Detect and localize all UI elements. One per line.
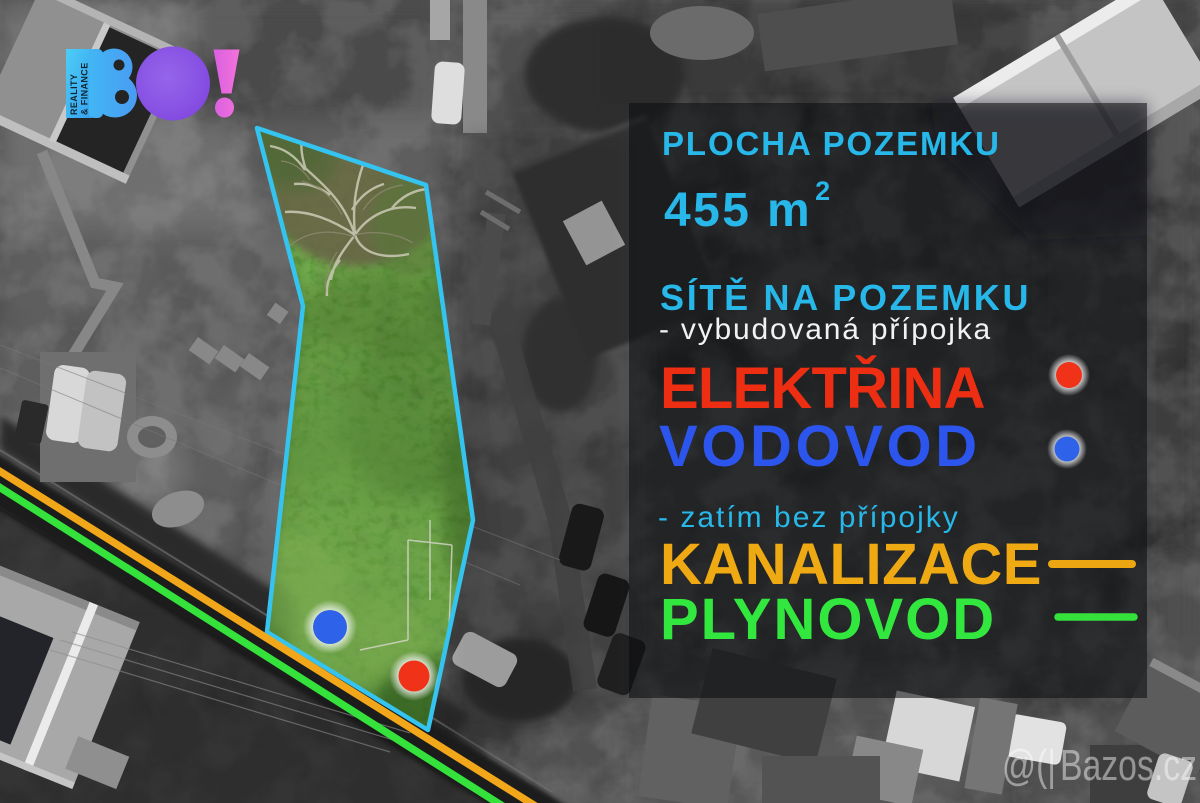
svg-text:@(|: @(| <box>1002 741 1056 790</box>
svg-text:& FINANCE: & FINANCE <box>80 62 90 115</box>
svg-text:REALITY: REALITY <box>69 74 79 115</box>
svg-text:Bazos.cz: Bazos.cz <box>1060 741 1197 790</box>
